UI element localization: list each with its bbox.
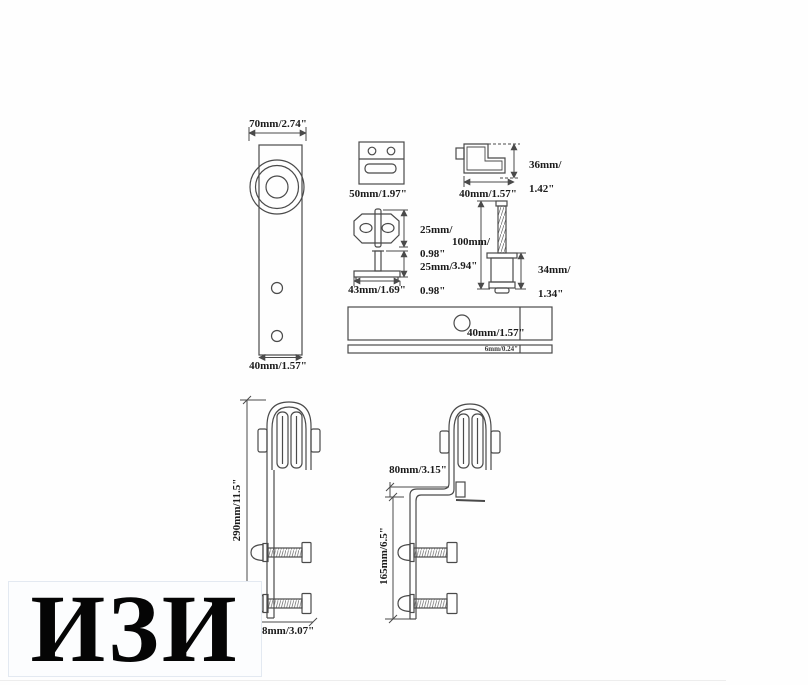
- dim-rail-thickness: 6mm/0.24": [468, 345, 518, 353]
- dim-side-right-offset: 80mm/3.15": [386, 464, 450, 476]
- hanger-front-view: [249, 127, 306, 358]
- dim-l-bracket-height-line2: 1.42": [529, 183, 554, 195]
- dim-hanger-front-top-width: 70mm/2.74": [238, 118, 318, 130]
- photo-bottom-edge: [0, 680, 726, 681]
- dim-spacer-height-line1: 34mm/: [538, 264, 570, 276]
- product-dimension-diagram: 70mm/2.74" 40mm/1.57" 50mm/1.97" 36mm/ 1…: [0, 0, 808, 685]
- dim-hanger-front-bottom-width: 40mm/1.57": [238, 360, 318, 372]
- dim-screw-length-line2: 3.94": [452, 260, 477, 272]
- dim-spacer-height-line2: 1.34": [538, 288, 563, 300]
- watermark-box: ИЗИ: [8, 581, 262, 677]
- dim-l-bracket-width: 40mm/1.57": [450, 188, 526, 200]
- dim-side-right-height: 165mm/6.5": [378, 521, 390, 591]
- dim-l-bracket-height-line1: 36mm/: [529, 159, 561, 171]
- dim-rail-hole-spacing: 40mm/1.57": [467, 327, 537, 339]
- door-stop-bracket: [359, 142, 404, 184]
- dim-door-stop-width: 50mm/1.97": [340, 188, 416, 200]
- dim-screw-length: 100mm/ 3.94": [441, 224, 481, 284]
- dim-spacer-height: 34mm/ 1.34": [527, 252, 567, 312]
- dim-side-left-width: 8mm/3.07": [262, 625, 324, 637]
- watermark-text: ИЗИ: [30, 581, 239, 677]
- hanger-side-view-right: [385, 404, 500, 623]
- dim-floor-guide-side-line2: 0.98": [420, 285, 445, 297]
- floor-guide: [354, 209, 408, 286]
- dim-floor-guide-base-width: 43mm/1.69": [337, 284, 417, 296]
- dim-screw-length-line1: 100mm/: [452, 236, 490, 248]
- l-bracket: [456, 144, 520, 187]
- dim-side-left-height: 290mm/11.5": [231, 470, 243, 550]
